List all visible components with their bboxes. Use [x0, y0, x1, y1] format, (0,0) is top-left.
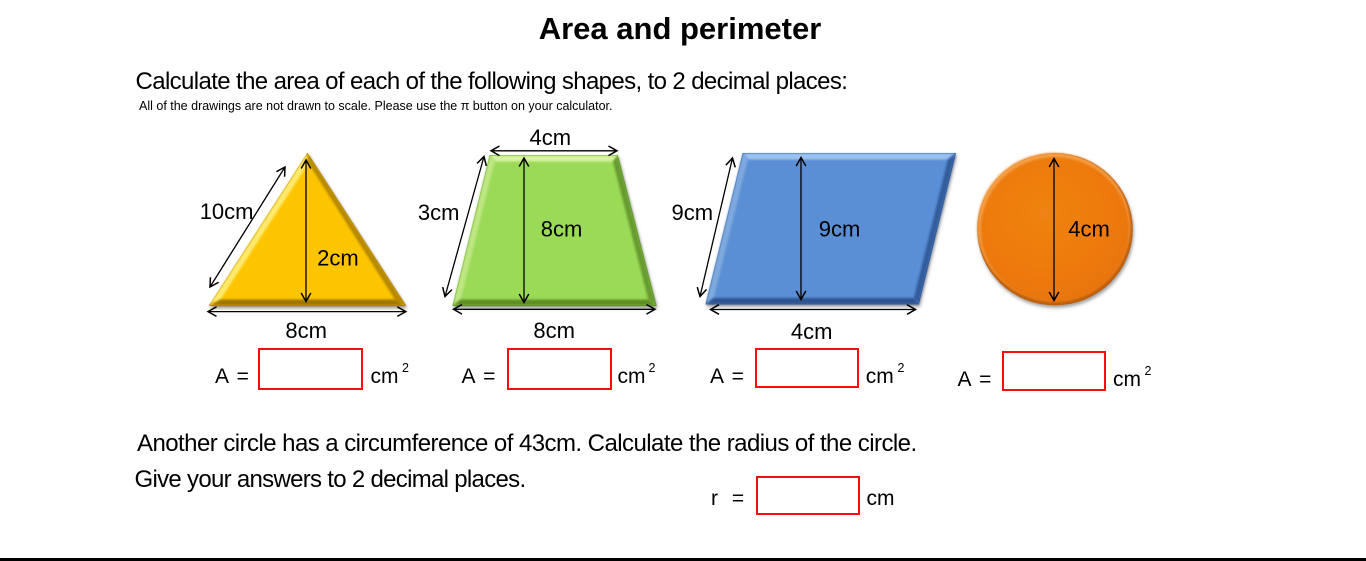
svg-text:9cm: 9cm: [819, 216, 861, 241]
svg-text:8cm: 8cm: [533, 318, 575, 343]
svg-text:2cm: 2cm: [317, 246, 359, 271]
svg-text:4cm: 4cm: [791, 319, 833, 344]
svg-text:8cm: 8cm: [541, 217, 583, 242]
svg-text:4cm: 4cm: [530, 125, 572, 150]
svg-text:10cm: 10cm: [200, 199, 254, 224]
svg-text:3cm: 3cm: [418, 200, 460, 225]
svg-text:8cm: 8cm: [285, 318, 327, 343]
svg-text:9cm: 9cm: [672, 200, 714, 225]
svg-text:4cm: 4cm: [1068, 216, 1110, 241]
